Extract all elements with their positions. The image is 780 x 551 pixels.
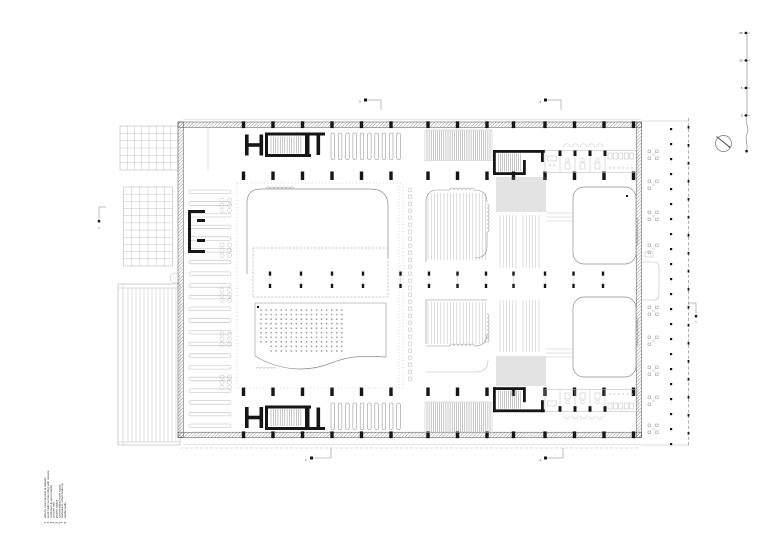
section-label-top-left: b — [359, 100, 361, 104]
section-marker-labels: b a b a c c — [98, 100, 697, 462]
section-markers — [98, 99, 697, 460]
roof-grids-north-west — [120, 126, 178, 266]
floor-plan-svg: 25 10 5 0 b a b a c c 1atrium, internal … — [0, 0, 780, 551]
east-tribune — [497, 177, 572, 386]
legend-item-label: textile walls — [63, 502, 67, 518]
legend-item: 8textile walls — [63, 502, 67, 524]
west-hall — [237, 183, 403, 388]
south-stair-strip — [245, 402, 492, 433]
section-label-top-right: a — [539, 100, 541, 104]
north-sanitary-core — [493, 144, 638, 175]
scale-label: 10 — [739, 59, 743, 63]
scale-bar — [744, 32, 750, 153]
legend: 1atrium, internal park & debate 2work ha… — [43, 470, 67, 523]
section-label-left: c — [98, 226, 100, 230]
east-terrace — [642, 118, 690, 446]
auditorium-seating — [260, 309, 343, 352]
north-stair-strip — [245, 130, 492, 161]
section-label-right: c — [695, 320, 697, 324]
scale-bar-labels: 25 10 5 0 — [739, 31, 743, 118]
north-arrow-icon — [716, 136, 732, 152]
south-sanitary-core — [493, 387, 638, 419]
west-ramp — [118, 284, 180, 445]
section-label-bottom-right: a — [539, 458, 541, 462]
scale-label: 5 — [741, 86, 743, 90]
east-hall-rooms — [573, 187, 638, 377]
legend-item-num: 8 — [63, 522, 67, 524]
section-label-bottom-left: b — [305, 458, 307, 462]
structural-columns — [242, 172, 635, 397]
plan-geometry — [98, 32, 750, 460]
scale-label: 25 — [739, 31, 743, 35]
drawing-sheet: 25 10 5 0 b a b a c c 1atrium, internal … — [0, 0, 780, 551]
scale-label: 0 — [741, 114, 743, 118]
exterior-walls — [178, 120, 642, 448]
